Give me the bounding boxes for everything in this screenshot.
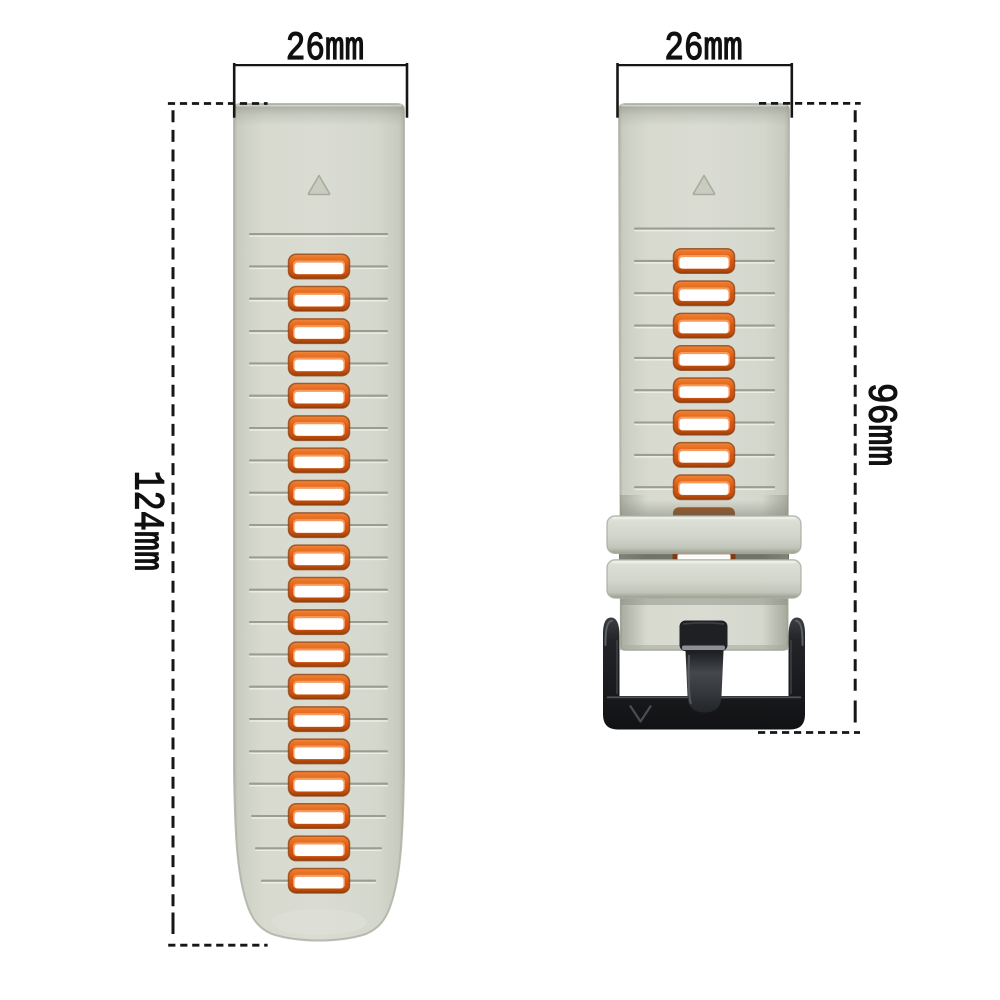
svg-text:124mm: 124mm (122, 470, 171, 571)
svg-text:26mm: 26mm (664, 26, 742, 71)
svg-text:26mm: 26mm (286, 26, 364, 71)
svg-text:96mm: 96mm (857, 383, 903, 467)
